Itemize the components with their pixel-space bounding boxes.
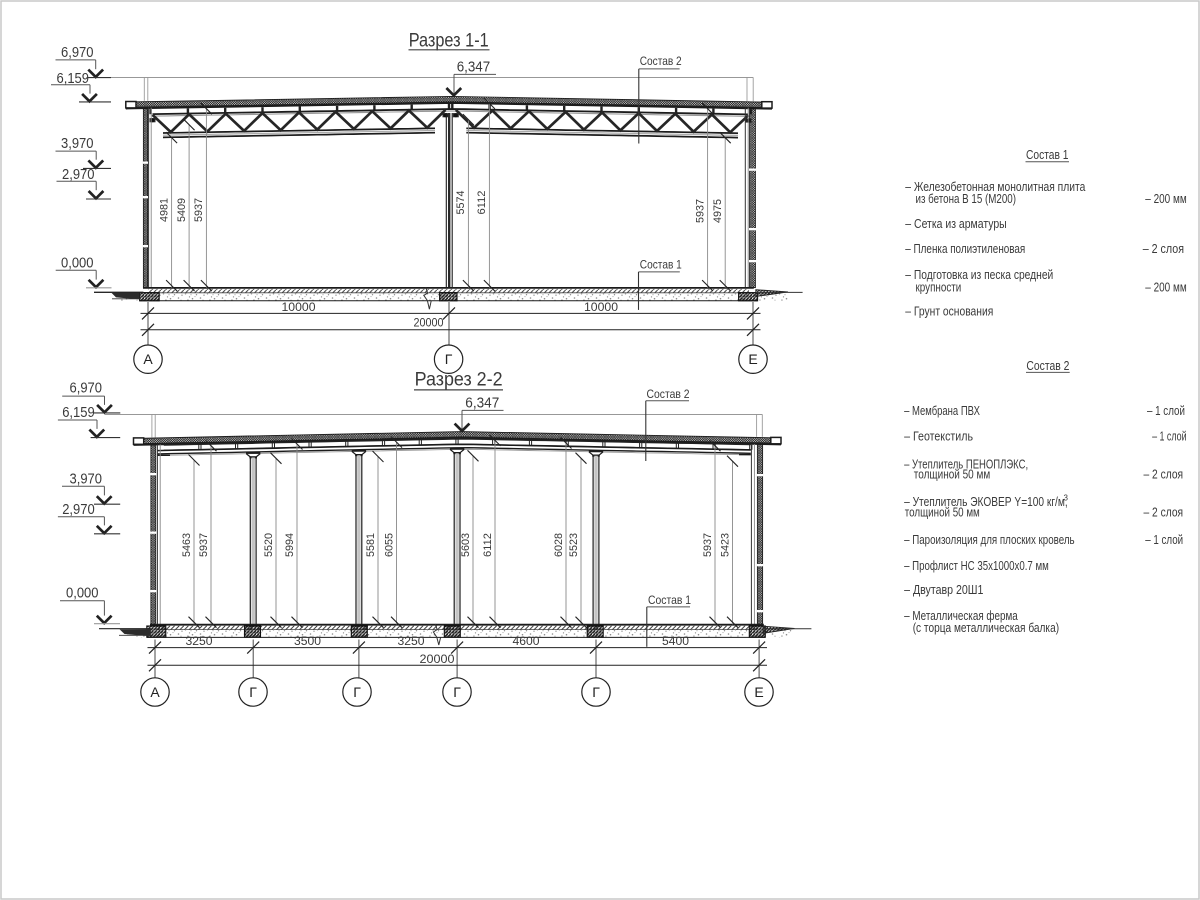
svg-text:– Двутавр 20Ш1: – Двутавр 20Ш1 — [904, 583, 983, 597]
svg-text:Состав 1: Состав 1 — [648, 593, 691, 607]
svg-text:Состав 2: Состав 2 — [647, 387, 690, 401]
svg-text:– 2 слоя: – 2 слоя — [1143, 242, 1184, 256]
svg-text:6,970: 6,970 — [70, 381, 103, 397]
svg-text:– Сетка из арматуры: – Сетка из арматуры — [905, 217, 1006, 231]
svg-text:4981: 4981 — [158, 198, 170, 222]
svg-text:6,159: 6,159 — [62, 405, 94, 421]
svg-text:20000: 20000 — [414, 315, 444, 329]
svg-text:толщиной 50 мм: толщиной 50 мм — [914, 468, 990, 482]
svg-text:5603: 5603 — [460, 533, 472, 557]
svg-text:5994: 5994 — [284, 533, 296, 557]
svg-text:крупности: крупности — [916, 281, 962, 295]
svg-text:5463: 5463 — [181, 533, 193, 557]
svg-text:Г: Г — [592, 684, 600, 700]
svg-text:Е: Е — [748, 351, 757, 367]
svg-text:– 200 мм: – 200 мм — [1145, 192, 1186, 206]
svg-text:10000: 10000 — [584, 302, 618, 314]
svg-text:– Пленка полиэтиленовая: – Пленка полиэтиленовая — [905, 242, 1025, 256]
svg-text:3: 3 — [1064, 494, 1069, 503]
svg-text:Г: Г — [353, 684, 361, 700]
svg-text:6028: 6028 — [553, 533, 565, 557]
svg-text:– Пароизоляция для плоских кро: – Пароизоляция для плоских кровель — [904, 533, 1075, 547]
svg-text:5523: 5523 — [568, 533, 580, 557]
svg-text:5409: 5409 — [176, 198, 188, 222]
svg-text:2,970: 2,970 — [62, 502, 94, 518]
svg-text:Состав 2: Состав 2 — [1026, 359, 1069, 373]
svg-text:6112: 6112 — [476, 191, 488, 215]
svg-text:5423: 5423 — [719, 533, 731, 557]
svg-text:– 2 слоя: – 2 слоя — [1144, 506, 1184, 520]
svg-text:– Мембрана ПВХ: – Мембрана ПВХ — [904, 404, 980, 418]
svg-text:3,970: 3,970 — [61, 136, 94, 152]
svg-text:– 1 слой: – 1 слой — [1145, 533, 1183, 547]
svg-text:А: А — [150, 684, 160, 700]
svg-text:(с торца металлическая балка): (с торца металлическая балка) — [913, 621, 1059, 635]
svg-text:– 1 слой: – 1 слой — [1152, 430, 1187, 444]
svg-text:4975: 4975 — [712, 199, 724, 223]
svg-text:– Грунт основания: – Грунт основания — [905, 305, 993, 319]
svg-text:10000: 10000 — [282, 302, 316, 314]
svg-text:5400: 5400 — [662, 636, 689, 648]
svg-text:5937: 5937 — [702, 533, 714, 557]
svg-text:Г: Г — [453, 684, 461, 700]
svg-text:из бетона В 15 (М200): из бетона В 15 (М200) — [916, 192, 1017, 206]
svg-text:0,000: 0,000 — [61, 255, 94, 271]
svg-text:6,347: 6,347 — [457, 60, 491, 76]
svg-text:Состав 1: Состав 1 — [640, 257, 682, 271]
svg-text:3500: 3500 — [294, 636, 321, 648]
svg-text:Е: Е — [754, 684, 763, 700]
svg-text:0,000: 0,000 — [66, 586, 99, 602]
svg-text:А: А — [143, 351, 153, 367]
svg-text:Разрез 1-1: Разрез 1-1 — [409, 31, 489, 52]
svg-text:6112: 6112 — [482, 533, 494, 557]
svg-text:5937: 5937 — [193, 198, 205, 222]
svg-text:– Геотекстиль: – Геотекстиль — [904, 430, 973, 444]
svg-text:3,970: 3,970 — [70, 471, 103, 487]
svg-text:5937: 5937 — [694, 199, 706, 223]
svg-text:– 1 слой: – 1 слой — [1147, 404, 1185, 418]
svg-text:5574: 5574 — [455, 191, 467, 215]
svg-text:5937: 5937 — [198, 533, 210, 557]
svg-text:5581: 5581 — [365, 533, 377, 557]
svg-text:3250: 3250 — [398, 636, 425, 648]
svg-text:– 2 слоя: – 2 слоя — [1144, 468, 1184, 482]
svg-text:– 200 мм: – 200 мм — [1145, 281, 1186, 295]
svg-text:3250: 3250 — [186, 636, 213, 648]
svg-text:5520: 5520 — [263, 533, 275, 557]
svg-text:Состав 1: Состав 1 — [1026, 148, 1069, 162]
svg-text:2,970: 2,970 — [62, 167, 95, 183]
svg-text:Г: Г — [249, 684, 257, 700]
svg-text:Состав 2: Состав 2 — [640, 54, 682, 68]
svg-text:4600: 4600 — [513, 636, 540, 648]
svg-text:толщиной 50 мм: толщиной 50 мм — [905, 506, 980, 520]
svg-text:– Профлист НС 35х1000х0.7 мм: – Профлист НС 35х1000х0.7 мм — [904, 559, 1049, 573]
svg-text:6,970: 6,970 — [61, 45, 94, 61]
svg-text:Г: Г — [445, 351, 453, 367]
svg-text:Разрез 2-2: Разрез 2-2 — [415, 370, 503, 391]
svg-text:20000: 20000 — [420, 654, 455, 666]
svg-text:6,347: 6,347 — [465, 396, 499, 412]
svg-text:6055: 6055 — [383, 533, 395, 557]
